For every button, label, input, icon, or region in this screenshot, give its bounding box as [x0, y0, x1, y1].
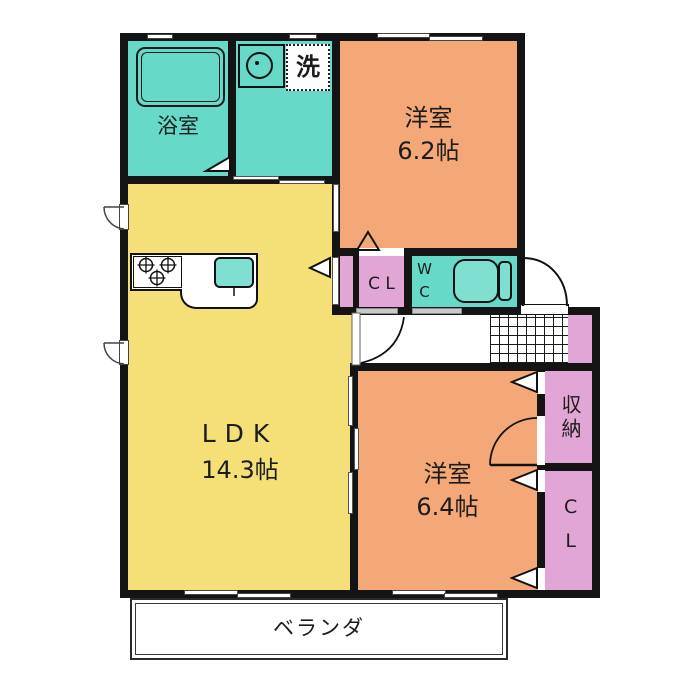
window-ldk-west-1	[119, 204, 129, 230]
wall-right-upper	[517, 33, 525, 258]
wc-label: WC	[414, 260, 434, 304]
window-ldk-west-2	[119, 340, 129, 365]
wall-hall-south	[350, 363, 600, 371]
toilet-tank	[498, 261, 512, 301]
wall-entry-north	[566, 307, 600, 315]
entrance-genkan	[490, 315, 568, 363]
bedroom-bottom-label: 洋室 6.4帖	[358, 458, 537, 524]
window-bed2-balcony-a	[392, 590, 446, 595]
bedroom-top-size: 6.2帖	[340, 135, 517, 168]
threshold-closet	[356, 308, 398, 314]
door-gap-bedroom2	[537, 416, 545, 465]
bedroom-bottom-name: 洋室	[358, 458, 537, 491]
hallway	[352, 315, 490, 363]
washbasin-bowl	[246, 52, 273, 79]
washing-machine-space: 洗	[286, 44, 330, 91]
bedroom-top-label: 洋室 6.2帖	[340, 102, 517, 168]
kitchen-stove	[133, 256, 182, 288]
threshold-wc	[412, 308, 462, 314]
kitchen-sink	[214, 257, 254, 288]
bathroom-label: 浴室	[128, 113, 228, 140]
closet-right-label: CL	[558, 492, 583, 568]
veranda-label: ベランダ	[273, 615, 365, 642]
sliding-door-washroom-2	[279, 180, 325, 184]
window-bathroom	[147, 34, 173, 39]
bathtub	[136, 47, 225, 107]
ldk-label: LDK 14.3帖	[128, 418, 352, 486]
closet-small	[340, 256, 353, 307]
bedroom-top-name: 洋室	[340, 102, 517, 135]
closet-mid-label: C L	[359, 273, 404, 295]
door-panel-closet-small	[332, 257, 339, 305]
door-gap-closet-mid	[359, 248, 404, 256]
front-door-swing	[523, 258, 567, 306]
kitchen-counter-return	[180, 289, 258, 309]
sliding-door-washroom-1	[233, 176, 279, 180]
door-panel-ldk-bedroom-top	[333, 184, 339, 232]
folding-door-closet-top	[537, 470, 545, 492]
wall-closet-wc	[404, 248, 412, 315]
ldk-name: LDK	[128, 418, 352, 451]
window-ldk-balcony-a	[184, 590, 238, 595]
folding-door-storage	[537, 372, 545, 394]
window-bed1-a	[377, 33, 430, 38]
window-bed1-b	[429, 36, 483, 41]
bedroom-bottom-size: 6.4帖	[358, 491, 537, 524]
washing-machine-label: 洗	[296, 52, 320, 83]
storage-label: 収納	[557, 388, 583, 448]
wall-left	[120, 33, 128, 598]
wall-bath-washroom	[228, 41, 236, 184]
wall-storage-closet	[537, 463, 592, 471]
toilet-bowl	[453, 259, 499, 303]
window-washroom	[289, 34, 317, 39]
ldk-size: 14.3帖	[128, 455, 352, 486]
wall-right-lower	[592, 307, 600, 598]
veranda: ベランダ	[130, 598, 508, 660]
floor-plan: 洗 ベランダ	[0, 0, 700, 700]
front-door-bar	[520, 304, 569, 315]
entrance-side-strip	[568, 315, 592, 363]
folding-door-closet-bottom	[537, 568, 545, 590]
